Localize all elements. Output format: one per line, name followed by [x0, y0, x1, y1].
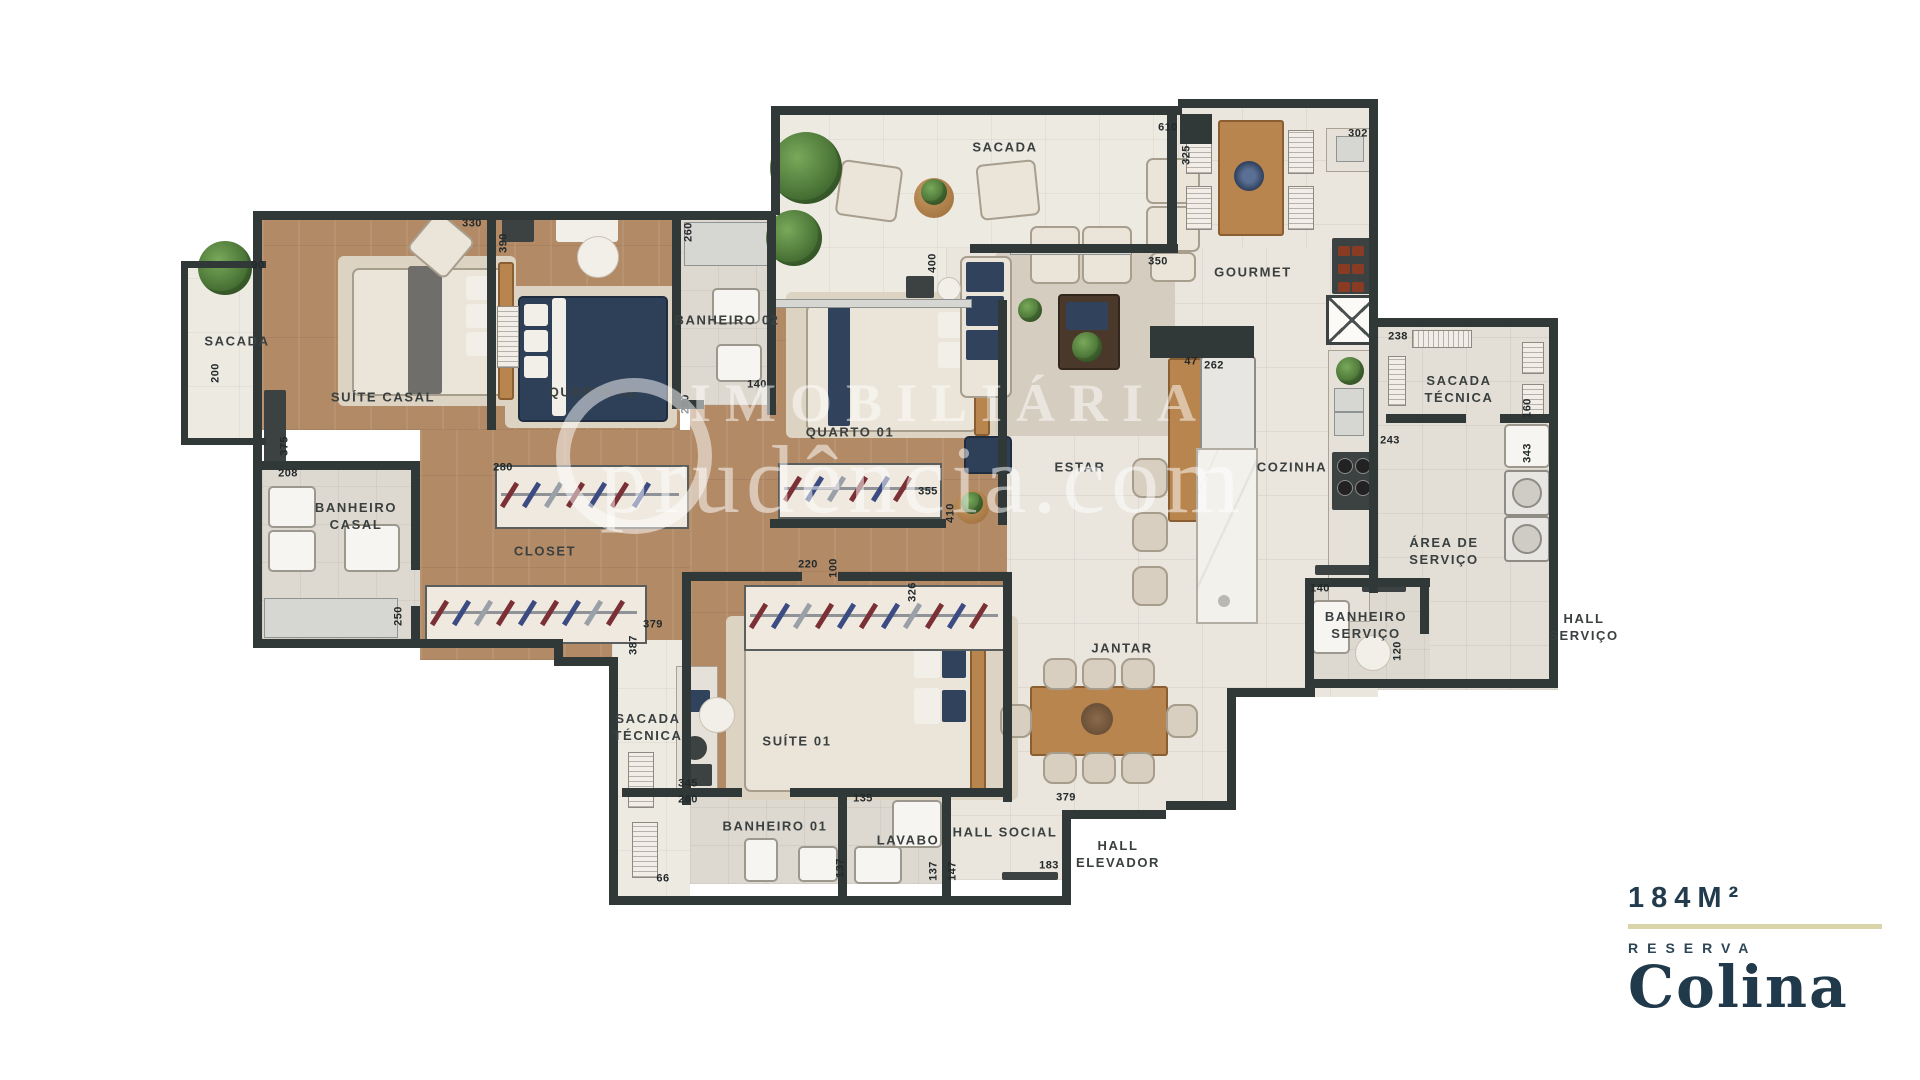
dimension-label: 350 [1148, 257, 1168, 268]
dimension-label: 208 [278, 469, 298, 480]
room-label-cozinha: COZINHA [1257, 460, 1327, 477]
dimension-label: 345 [678, 779, 698, 790]
wall [1180, 114, 1212, 144]
bed-throw [408, 266, 442, 394]
dryer-drum [1512, 524, 1542, 554]
sink-banheiro-casal [268, 530, 316, 572]
wall [790, 788, 1012, 797]
dimension-label: 160 [1523, 398, 1534, 418]
wall [487, 215, 496, 430]
dimension-label: 66 [656, 874, 669, 885]
wall [1178, 99, 1378, 108]
armchair-estar [1030, 226, 1080, 284]
plant [921, 179, 947, 205]
dimension-label: 250 [394, 606, 405, 626]
wall [771, 106, 1182, 115]
room-label-sacada: SACADA [204, 334, 269, 351]
brand-block: 184M² RESERVA Colina [1628, 882, 1882, 1016]
wall [1150, 326, 1254, 358]
toilet-lavabo [854, 846, 902, 884]
dimension-label: 330 [462, 219, 482, 230]
dining-chair [1082, 658, 1116, 690]
toilet-banheiro01 [744, 838, 778, 882]
wall [682, 572, 691, 805]
unit-area-label: 184M² [1628, 882, 1882, 915]
side-shelf [497, 306, 519, 368]
wall [181, 438, 266, 445]
wall [672, 215, 681, 405]
dimension-label: 325 [1182, 145, 1193, 165]
wall [253, 639, 563, 648]
armchair-estar [1082, 226, 1132, 284]
wall [771, 106, 780, 215]
gourmet-sink [1336, 136, 1364, 162]
dimension-label: 260 [684, 222, 695, 242]
wall [690, 572, 802, 581]
wall [181, 261, 188, 445]
dimension-label: 379 [1056, 793, 1076, 804]
dining-chair [1121, 752, 1155, 784]
dining-chair [1043, 658, 1077, 690]
room-label-banheiro-01: BANHEIRO 01 [722, 819, 827, 836]
wall [253, 211, 262, 648]
wall [258, 211, 775, 220]
table-tray [1066, 302, 1108, 330]
wardrobe [744, 585, 1008, 651]
room-label-jantar: JANTAR [1091, 641, 1152, 658]
mirror [577, 236, 619, 278]
dimension-label: 260 [678, 795, 698, 806]
gourmet-chair [1186, 186, 1212, 230]
dimension-label: 238 [1388, 332, 1408, 343]
watermark-text-line2: prudência.com [600, 424, 1246, 535]
stove-burner [1337, 458, 1353, 474]
shower-banheiro-casal [264, 598, 398, 638]
room-label-banheiro-02: BANHEIRO 02 [674, 313, 779, 330]
lounge-chair [975, 159, 1041, 221]
dimension-label: 280 [493, 463, 513, 474]
room-label-rea-de-servi-o: ÁREA DE SERVIÇO [1409, 535, 1478, 569]
wall [1369, 103, 1378, 327]
sink-banheiro-casal [268, 486, 316, 528]
grill-coal [1352, 246, 1364, 256]
brand-divider-line [1628, 924, 1882, 929]
exterior-cutout [1236, 697, 1386, 812]
dimension-label: 137 [836, 858, 847, 878]
room-label-hall-elevador: HALL ELEVADOR [1076, 838, 1160, 872]
ac-condenser [628, 752, 654, 808]
dimension-label: 147 [948, 861, 959, 881]
dining-centerpiece [1081, 703, 1113, 735]
grill-coal [1338, 282, 1350, 292]
gourmet-chair [1288, 130, 1314, 174]
table-centerpiece [1234, 161, 1264, 191]
kitchen-sink [1334, 412, 1364, 436]
dining-chair [1043, 752, 1077, 784]
room-label-banheiro-casal: BANHEIRO CASAL [315, 500, 397, 534]
grill-coal [1338, 264, 1350, 274]
washer-drum [1512, 478, 1542, 508]
shower-banheiro02 [684, 222, 768, 266]
exterior-cutout [1166, 810, 1386, 910]
dining-chair [1121, 658, 1155, 690]
dimension-label: 243 [1380, 436, 1400, 447]
sofa-cushion [966, 262, 1004, 292]
shelf [1315, 565, 1373, 575]
wall [609, 657, 618, 905]
pillow-navy [942, 690, 966, 722]
gourmet-chair [1288, 186, 1314, 230]
wall [1062, 810, 1166, 819]
room-label-su-te-01: SUÍTE 01 [762, 734, 831, 751]
dimension-label: 400 [928, 253, 939, 273]
grill-coal [1338, 246, 1350, 256]
wall [838, 797, 847, 896]
pillow [524, 330, 548, 352]
room-label-sacada-t-cnica: SACADA TÉCNICA [614, 711, 683, 745]
dimension-label: 375 [280, 436, 291, 456]
ac-condenser [632, 822, 658, 878]
glass-door [775, 299, 972, 308]
wall [411, 470, 420, 570]
dimension-label: 90 [251, 261, 264, 272]
plant [770, 132, 842, 204]
room-label-sacada-t-cnica: SACADA TÉCNICA [1425, 373, 1494, 407]
dimension-label: 183 [1039, 861, 1059, 872]
round-chair [699, 697, 735, 733]
wall-unit [1522, 342, 1544, 374]
plant [1072, 332, 1102, 362]
stove-burner [1337, 480, 1353, 496]
dimension-label: 140 [1310, 584, 1330, 595]
dimension-label: 220 [798, 560, 818, 571]
floorplan-page: SACADAGOURMETSUÍTE CASALQUARTO 02BANHEIR… [0, 0, 1920, 1080]
doormat [1002, 872, 1058, 880]
wall [1166, 801, 1236, 810]
plant [1336, 357, 1364, 385]
wall [942, 797, 951, 896]
wall [1062, 810, 1071, 905]
dimension-label: 302 [1348, 129, 1368, 140]
grill-coal [1352, 282, 1364, 292]
wall [1420, 578, 1429, 634]
pillow [524, 304, 548, 326]
wall [1386, 414, 1466, 423]
headboard [970, 626, 986, 796]
dimension-label: 262 [1204, 361, 1224, 372]
dining-chair [1166, 704, 1198, 738]
pillow [914, 688, 940, 724]
wall [609, 896, 1070, 905]
ac-condenser [1412, 330, 1472, 348]
wall [970, 244, 1178, 253]
dimension-label: 387 [629, 635, 640, 655]
dimension-label: 379 [643, 620, 663, 631]
pillow [524, 356, 548, 378]
plant [198, 241, 252, 295]
wall [1305, 578, 1314, 688]
wall [411, 606, 420, 648]
dimension-label: 326 [908, 582, 919, 602]
room-label-closet: CLOSET [514, 544, 576, 561]
island-faucet [1218, 595, 1230, 607]
dimension-label: 135 [853, 794, 873, 805]
nightstand [906, 276, 934, 298]
room-label-lavabo: LAVABO [877, 833, 940, 850]
ac-condenser [1388, 356, 1406, 406]
dimension-label: 137 [929, 861, 940, 881]
wall [1003, 572, 1012, 802]
room-label-hall-servi-o: HALL SERVIÇO [1549, 611, 1618, 645]
room-label-su-te-casal: SUÍTE CASAL [331, 390, 435, 407]
dimension-label: 47 [1184, 357, 1197, 368]
room-label-gourmet: GOURMET [1214, 265, 1292, 282]
kitchen-sink [1334, 388, 1364, 412]
room-label-sacada: SACADA [972, 140, 1037, 157]
stool [1132, 566, 1168, 606]
plant [1018, 298, 1042, 322]
dimension-label: 390 [499, 233, 510, 253]
wall [1305, 679, 1558, 688]
wardrobe-rail [750, 614, 998, 617]
dining-chair [1082, 752, 1116, 784]
wall [1227, 688, 1236, 810]
dimension-label: 343 [1523, 443, 1534, 463]
grill-coal [1352, 264, 1364, 274]
wall [1227, 688, 1315, 697]
wall [838, 572, 1010, 581]
dimension-label: 100 [829, 558, 840, 578]
dimension-label: 120 [1393, 641, 1404, 661]
dimension-label: 200 [211, 363, 222, 383]
room-label-hall-social: HALL SOCIAL [953, 825, 1058, 842]
wall [1369, 327, 1378, 593]
sink-banheiro01 [798, 846, 838, 882]
lounge-chair [834, 159, 903, 223]
lamp [937, 277, 961, 301]
dimension-label: 610 [1158, 123, 1178, 134]
room-label-banheiro-servi-o: BANHEIRO SERVIÇO [1325, 609, 1407, 643]
brand-colina-logo: Colina [1628, 958, 1882, 1016]
wall [1378, 318, 1558, 327]
